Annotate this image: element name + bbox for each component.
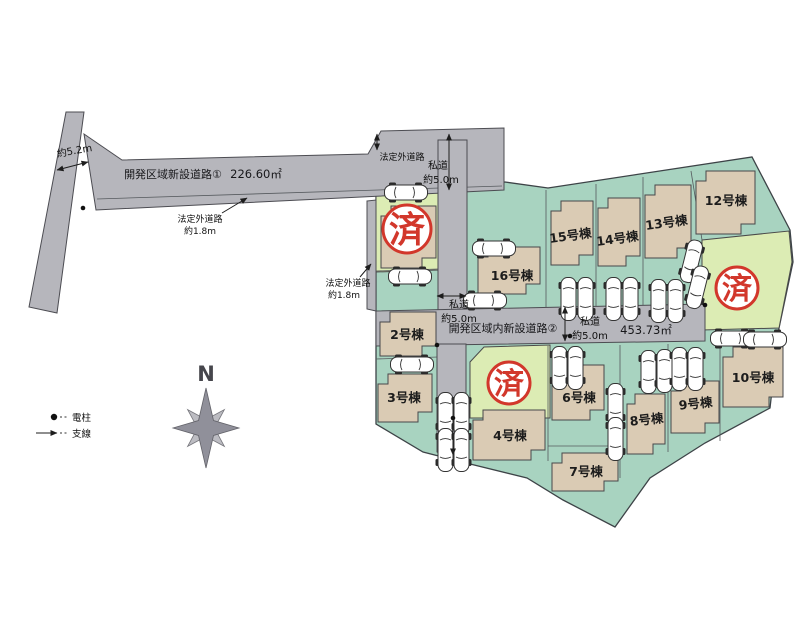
car-icon xyxy=(576,278,596,321)
lot-label-6: 6号棟 xyxy=(562,390,596,405)
lot-label-4: 4号棟 xyxy=(493,428,527,443)
lot-label-3: 3号棟 xyxy=(387,390,421,405)
road2-area-label: 453.73㎡ xyxy=(620,323,672,337)
lot-label-7: 7号棟 xyxy=(569,464,603,479)
car-icon xyxy=(686,348,706,391)
legend-guy-wire-label: 支線 xyxy=(72,428,92,440)
site-plan: 済 済 済 開発区域新設道路① 226.60㎡ 開発区域内新設道路② 453.7… xyxy=(0,0,800,641)
legal-width-label-left: 約1.8m xyxy=(184,225,216,237)
legal-road-label-mid: 法定外道路 xyxy=(325,277,370,289)
compass-main-star xyxy=(173,388,239,468)
road1-area-label: 226.60㎡ xyxy=(230,167,282,181)
car-icon xyxy=(744,330,787,350)
private-width-label-road2: 約5.0m xyxy=(572,329,608,342)
car-icon xyxy=(464,291,507,311)
pole-icon xyxy=(703,303,708,308)
road-legal-strip xyxy=(367,200,376,311)
car-icon xyxy=(566,347,586,390)
car-icon xyxy=(606,418,626,461)
legal-road-label-top: 法定外道路 xyxy=(379,151,424,163)
road-left xyxy=(29,112,84,313)
private-width-label-top: 約5.0m xyxy=(423,173,459,186)
compass-north-label: N xyxy=(197,362,215,386)
legal-width-label-mid: 約1.8m xyxy=(328,289,360,301)
private-road-label-top: 私道 xyxy=(428,159,448,172)
legal-road-label-left: 法定外道路 xyxy=(177,213,222,225)
lot-label-2: 2号棟 xyxy=(390,327,424,342)
sold-stamp-text: 済 xyxy=(494,367,525,402)
legend: 電柱 支線 xyxy=(36,412,92,440)
plot-map-svg: 済 済 済 開発区域新設道路① 226.60㎡ 開発区域内新設道路② 453.7… xyxy=(0,0,800,641)
car-icon xyxy=(473,239,516,259)
lot-label-10: 10号棟 xyxy=(732,370,775,385)
road1-name-label: 開発区域新設道路① xyxy=(124,167,222,181)
lot-label-16: 16号棟 xyxy=(491,268,534,283)
car-icon xyxy=(666,280,686,323)
legend-pole-label: 電柱 xyxy=(72,412,92,424)
compass-rose: N xyxy=(169,362,243,468)
legend-pole-icon xyxy=(51,414,57,420)
private-road-label-mid: 私道 xyxy=(449,298,469,311)
sold-stamp: 済 xyxy=(488,362,530,404)
sold-stamp: 済 xyxy=(716,267,758,309)
car-icon xyxy=(385,183,428,203)
sold-stamp-text: 済 xyxy=(722,272,753,307)
sold-stamp-text: 済 xyxy=(389,210,425,251)
private-width-label-mid: 約5.0m xyxy=(441,312,477,325)
pole-icon xyxy=(435,343,440,348)
lot-label-12: 12号棟 xyxy=(705,193,748,208)
car-icon xyxy=(621,278,641,321)
car-icon xyxy=(389,267,432,287)
car-icon xyxy=(391,355,434,375)
car-icon xyxy=(452,429,472,472)
sold-stamp: 済 xyxy=(383,205,431,253)
pole-icon xyxy=(81,206,86,211)
pole-icon xyxy=(451,416,456,421)
private-road-label-road2: 私道 xyxy=(580,315,600,328)
